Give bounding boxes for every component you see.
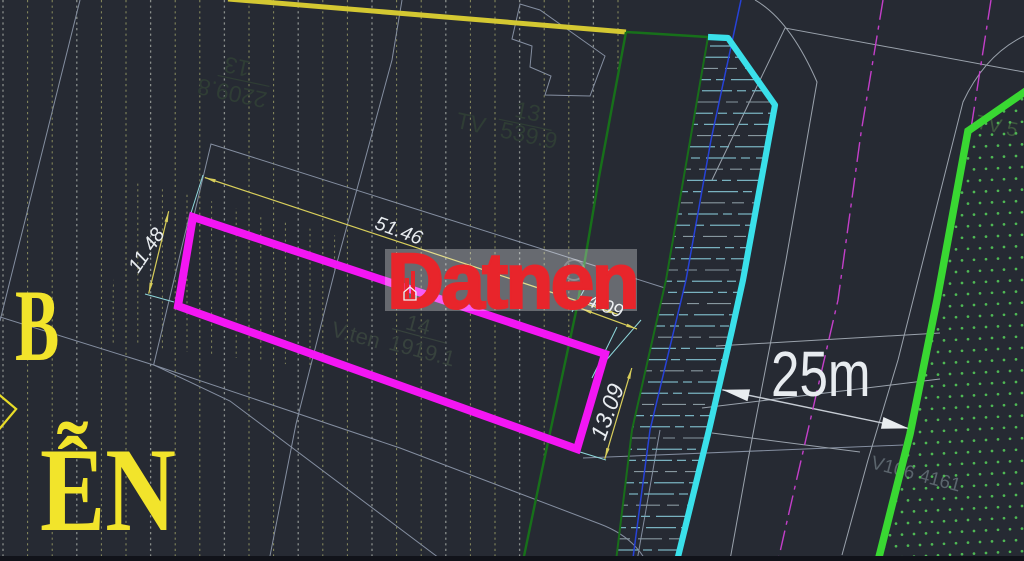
svg-text:25m: 25m [771, 340, 871, 411]
svg-text:ỄN: ỄN [40, 420, 176, 556]
svg-text:B: B [15, 268, 59, 382]
svg-text:Datnen: Datnen [387, 236, 637, 325]
